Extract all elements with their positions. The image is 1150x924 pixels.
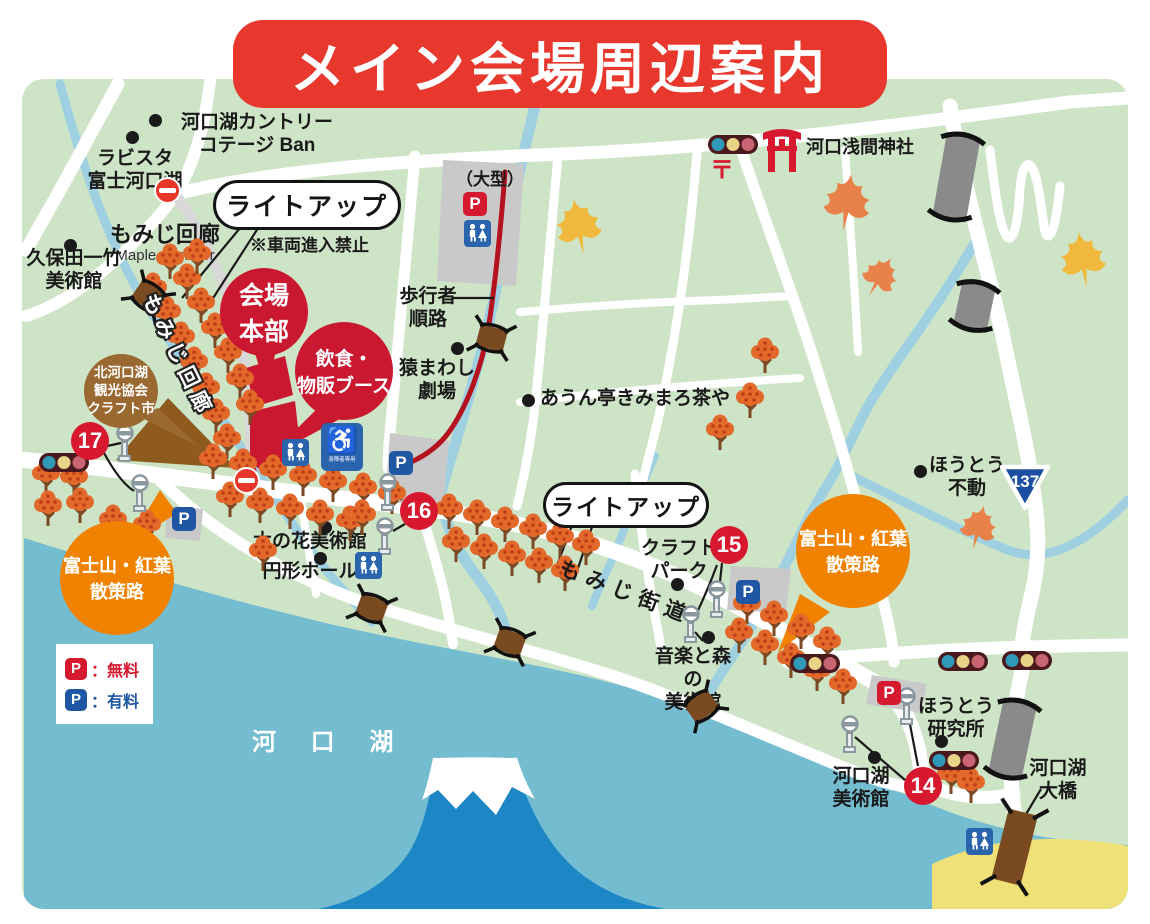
parking-icon-paid: P xyxy=(736,580,760,604)
maple-tree-icon xyxy=(65,487,95,530)
toilet-icon xyxy=(966,828,993,860)
parking-icon-paid: P xyxy=(172,507,196,531)
marker-15: 15 xyxy=(710,526,748,564)
bus-stop-icon xyxy=(115,424,137,469)
toilet-icon xyxy=(464,220,491,252)
label-pedestrian-route: 歩行者 順路 xyxy=(392,286,464,332)
maple-tree-icon xyxy=(441,526,471,569)
bus-stop-icon xyxy=(707,580,729,625)
maple-tree-icon xyxy=(305,499,335,542)
maple-tree-icon xyxy=(248,535,278,578)
poi-dot xyxy=(914,465,927,478)
traffic-light-icon xyxy=(938,652,988,676)
callout-food-booth: 飲食・ 物販ブース xyxy=(295,322,393,420)
maple-tree-icon xyxy=(182,238,212,281)
legend-free-row: P ：無料 xyxy=(65,657,153,681)
maple-tree-icon xyxy=(750,337,780,380)
parking-icon-free: P xyxy=(877,681,901,705)
poi-dot xyxy=(126,131,139,144)
legend-paid-label: ：有料 xyxy=(91,688,139,712)
toilet-icon xyxy=(355,552,382,584)
poi-dot xyxy=(451,342,464,355)
traffic-light-icon xyxy=(929,751,979,775)
maple-tree-icon xyxy=(497,540,527,583)
maple-tree-icon xyxy=(705,414,735,457)
poi-dot xyxy=(149,114,162,127)
no-entry-icon xyxy=(233,467,260,494)
label-no-vehicle: ※車両進入禁止 xyxy=(250,236,430,256)
label-large-parking: （大型） xyxy=(450,170,530,190)
legend-paid-row: P ：有料 xyxy=(65,688,153,712)
torii-icon xyxy=(762,126,802,177)
label-kawaguchiko-museum: 河口湖 美術館 xyxy=(826,766,896,812)
post-office-mark: 〒 xyxy=(710,150,734,185)
label-monkey-theater: 猿まわし 劇場 xyxy=(396,358,478,404)
marker-17: 17 xyxy=(71,422,109,460)
label-aun-tei: あうん亭きみまろ茶や xyxy=(540,388,740,411)
poi-dot xyxy=(702,631,715,644)
label-kubota-museum: 久保田一竹 美術館 xyxy=(24,248,124,294)
toilet-icon xyxy=(282,439,309,471)
parking-icon-paid: P xyxy=(65,689,87,711)
route-137-badge: 137 xyxy=(998,462,1052,517)
label-country-cottage: 河口湖カントリー コテージ Ban xyxy=(162,112,352,158)
label-craft-park: クラフト パーク xyxy=(639,538,719,584)
label-hoto-fudo: ほうとう 不動 xyxy=(928,455,1006,501)
map-title: メイン会場周辺案内 xyxy=(233,20,887,108)
event-area-map: メイン会場周辺案内 河口湖カントリー コテージ Ban ラビスタ 富士河口湖 も… xyxy=(0,0,1150,924)
callout-lightup-2: ライトアップ xyxy=(543,482,709,528)
no-entry-icon xyxy=(154,177,181,204)
callout-venue-hq: 会場 本部 xyxy=(220,268,308,356)
bus-stop-icon xyxy=(840,715,862,760)
parking-icon-paid: P xyxy=(389,451,413,475)
maple-tree-icon xyxy=(347,499,377,542)
poi-dot xyxy=(868,751,881,764)
label-sengen-shrine: 河口浅間神社 xyxy=(806,137,926,159)
marker-16: 16 xyxy=(400,492,438,530)
callout-stroll-path-right: 富士山・紅葉 散策路 xyxy=(796,494,910,608)
maple-tree-icon xyxy=(469,533,499,576)
callout-lightup-1: ライトアップ xyxy=(213,180,401,230)
wheelchair-caption: 身障者専用 xyxy=(323,457,361,462)
maple-tree-icon xyxy=(33,490,63,533)
traffic-light-icon xyxy=(1002,651,1052,675)
parking-icon-free: P xyxy=(463,192,487,216)
maple-tree-icon xyxy=(198,443,228,486)
maple-tree-icon xyxy=(275,493,305,536)
wheelchair-parking-icon: ♿ 身障者専用 xyxy=(321,423,363,471)
maple-leaf-decoration xyxy=(1048,224,1119,299)
marker-14: 14 xyxy=(904,767,942,805)
poi-dot xyxy=(522,394,535,407)
callout-craft-market: 北河口湖 観光協会 クラフト市 xyxy=(84,354,158,428)
parking-legend: P ：無料 P ：有料 xyxy=(56,644,153,724)
maple-tree-icon xyxy=(735,382,765,425)
maple-leaf-decoration xyxy=(811,166,884,243)
route-137-number: 137 xyxy=(1011,472,1039,491)
label-lake-kawaguchiko: 河 口 湖 xyxy=(252,722,407,757)
wheelchair-glyph: ♿ xyxy=(321,423,363,457)
callout-stroll-path-left: 富士山・紅葉 散策路 xyxy=(60,521,174,635)
maple-leaf-decoration xyxy=(543,190,616,267)
label-hoto-lab: ほうとう 研究所 xyxy=(915,696,997,742)
bus-stop-icon xyxy=(681,605,703,650)
legend-free-label: ：無料 xyxy=(91,657,139,681)
maple-tree-icon xyxy=(235,389,265,432)
bus-stop-icon xyxy=(378,473,400,518)
parking-icon-free: P xyxy=(65,658,87,680)
bus-stop-icon xyxy=(130,474,152,519)
traffic-light-icon xyxy=(790,654,840,678)
